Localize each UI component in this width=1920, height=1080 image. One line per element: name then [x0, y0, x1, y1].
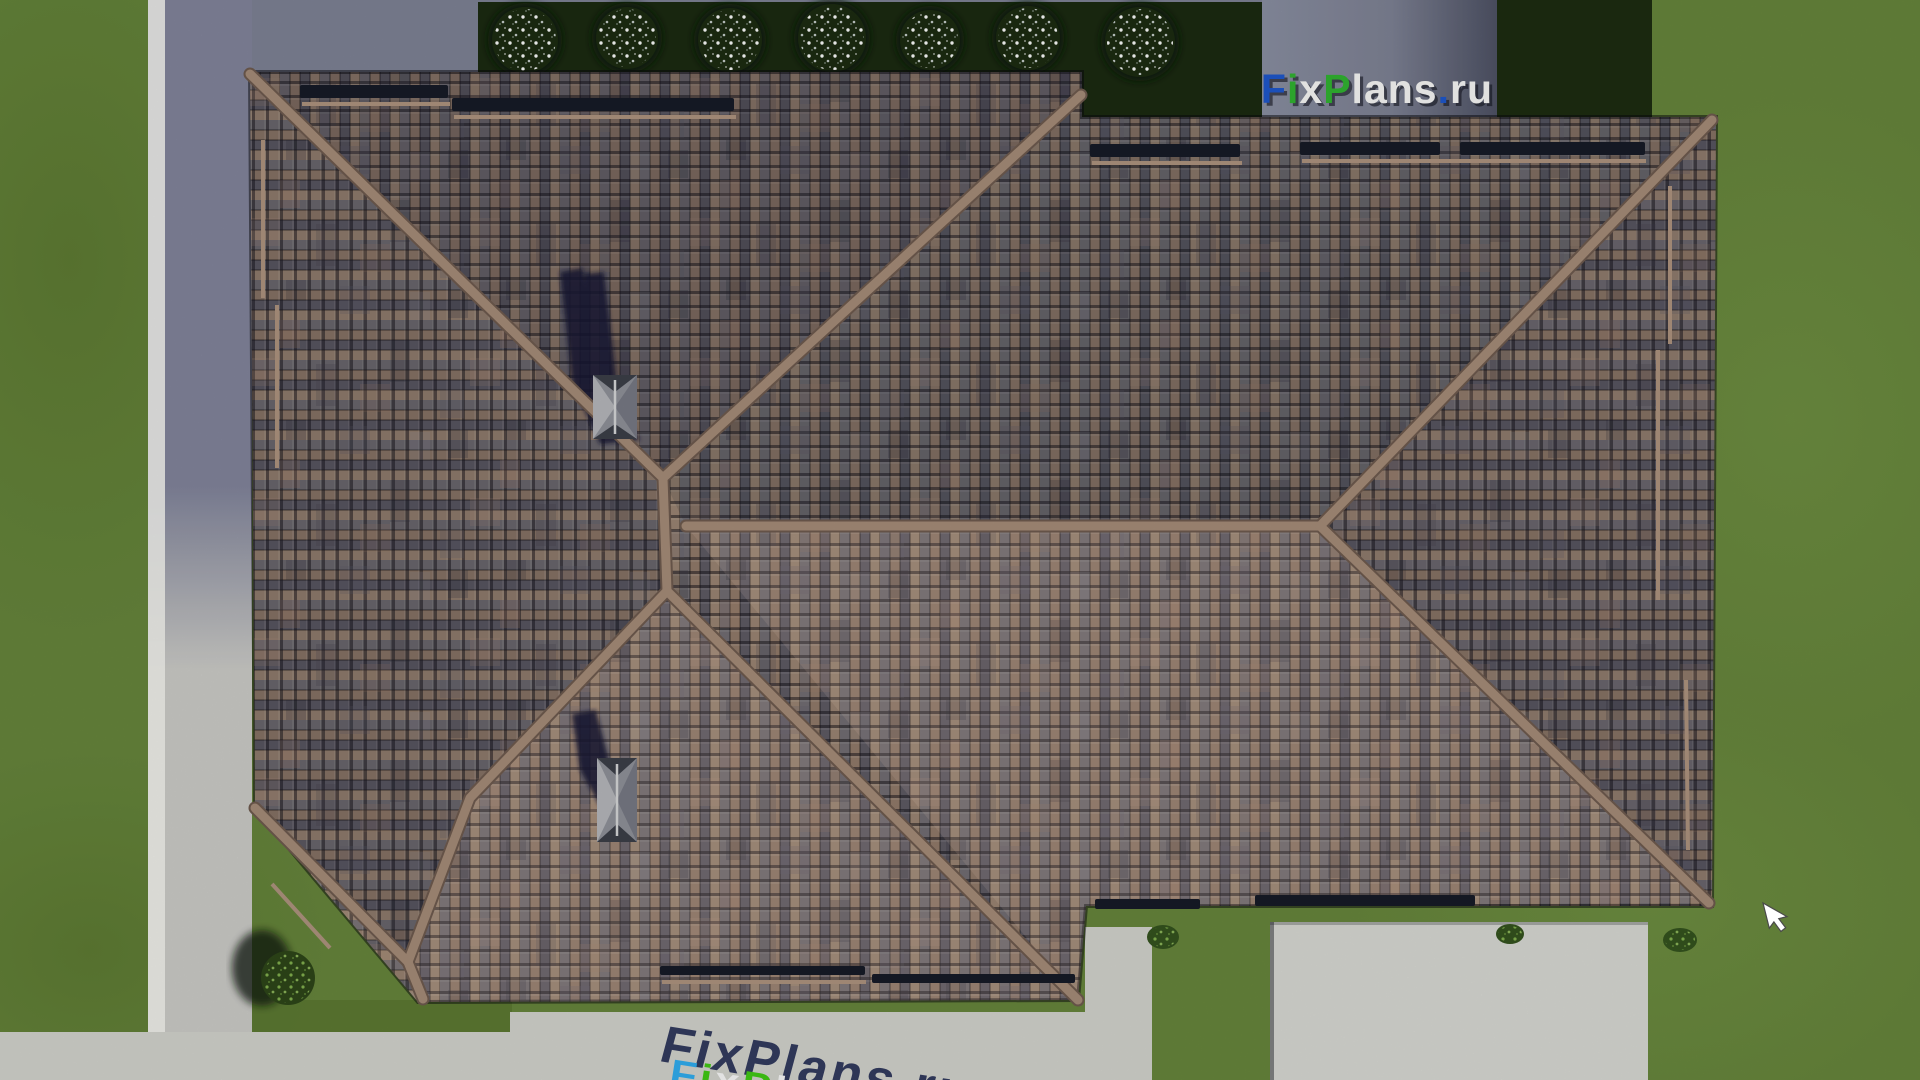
aerial-roof-render: FixPlans.ru FixPlans.ru FixPlans.ru FixP…: [0, 0, 1920, 1080]
noise-overlay: [0, 0, 1920, 1080]
